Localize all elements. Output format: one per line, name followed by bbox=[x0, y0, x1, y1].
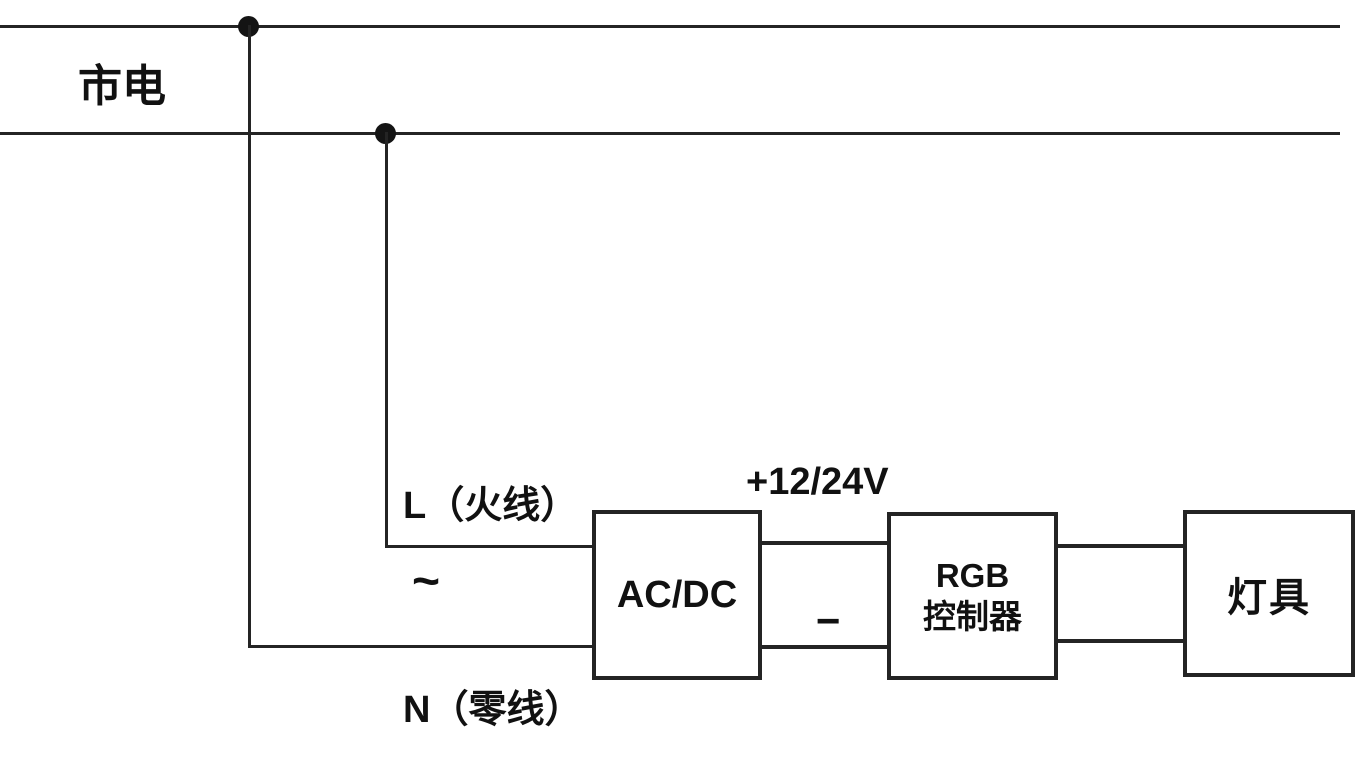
neutral-wire-label: N（零线） bbox=[403, 690, 582, 732]
wire-dc-positive bbox=[760, 541, 890, 545]
wire-neutral-vertical bbox=[248, 25, 251, 648]
wire-live-vertical bbox=[385, 132, 388, 548]
wire-mains-top-rail bbox=[0, 25, 1340, 28]
wire-dc-negative bbox=[760, 645, 890, 649]
lamp-box: 灯具 bbox=[1183, 510, 1355, 677]
dc-negative-label: − bbox=[806, 598, 850, 644]
dc-voltage-label: +12/24V bbox=[746, 462, 889, 504]
ac-tilde-symbol: ~ bbox=[412, 556, 440, 609]
wire-mains-bottom-rail bbox=[0, 132, 1340, 135]
wiring-diagram-canvas: 市电 L（火线） ~ N（零线） AC/DC +12/24V − RGB 控制器… bbox=[0, 0, 1372, 780]
rgb-controller-box: RGB 控制器 bbox=[887, 512, 1058, 680]
acdc-converter-box: AC/DC bbox=[592, 510, 762, 680]
wire-controller-to-lamp-top bbox=[1055, 544, 1186, 548]
wire-live-horizontal bbox=[385, 545, 594, 548]
mains-label: 市电 bbox=[78, 63, 166, 111]
wire-controller-to-lamp-bottom bbox=[1055, 639, 1186, 643]
live-wire-label: L（火线） bbox=[403, 486, 578, 528]
wire-neutral-horizontal bbox=[248, 645, 594, 648]
